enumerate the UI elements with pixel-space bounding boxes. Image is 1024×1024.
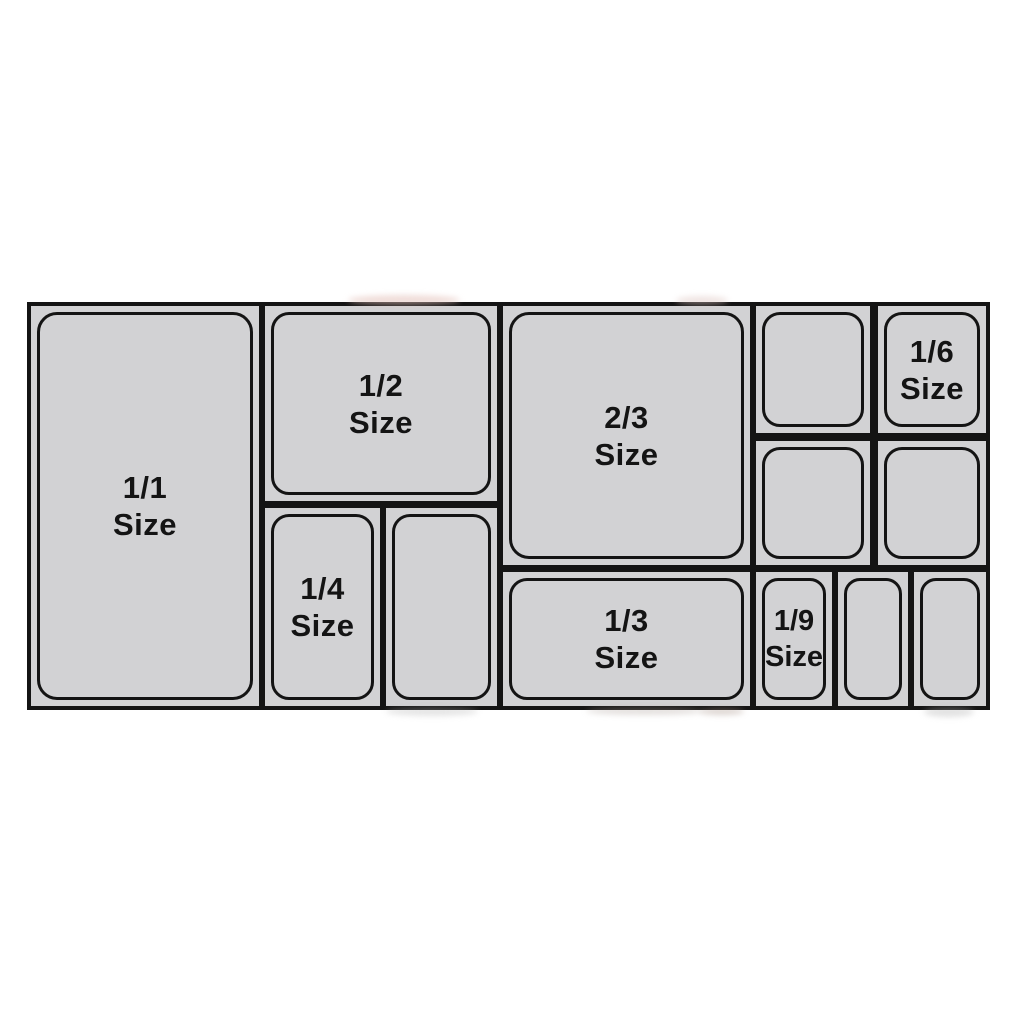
gastronorm-size-diagram: 1/1 Size 1/2 Size 1/4 Size <box>27 302 990 710</box>
pan-sixth-unlabeled-c <box>878 441 986 565</box>
pan-1-3-label: 1/3 Size <box>503 572 750 706</box>
pan-fraction: 2/3 <box>604 399 649 436</box>
pan-fraction: 1/6 <box>910 333 955 370</box>
pan-size-word: Size <box>113 506 177 543</box>
pan-fraction: 1/9 <box>774 603 814 639</box>
pan-1-9-label: 1/9 Size <box>756 572 832 706</box>
pan-rim <box>920 578 980 700</box>
pan-size-word: Size <box>349 404 413 441</box>
pan-1-4: 1/4 Size <box>265 508 380 706</box>
pan-size-word: Size <box>594 639 658 676</box>
pan-1-2-label: 1/2 Size <box>265 306 497 501</box>
pan-2-3: 2/3 Size <box>503 306 750 565</box>
pan-fraction: 1/3 <box>604 602 649 639</box>
pan-1-9: 1/9 Size <box>756 572 832 706</box>
pan-sixth-unlabeled-b <box>756 441 870 565</box>
pan-rim <box>392 514 491 700</box>
pan-ninth-unlabeled-b <box>914 572 986 706</box>
pan-fraction: 1/4 <box>300 570 345 607</box>
shadow-artifact <box>586 707 704 715</box>
pan-1-2: 1/2 Size <box>265 306 497 501</box>
pan-1-4-label: 1/4 Size <box>265 508 380 706</box>
pan-fraction: 1/1 <box>123 469 168 506</box>
shadow-artifact <box>700 708 744 715</box>
pan-rim <box>762 447 864 559</box>
pan-fraction: 1/2 <box>359 367 404 404</box>
pan-2-3-label: 2/3 Size <box>503 306 750 565</box>
pan-size-word: Size <box>765 639 823 675</box>
pan-sixth-unlabeled-a <box>756 306 870 433</box>
pan-1-6-label: 1/6 Size <box>878 306 986 433</box>
pan-quarter-unlabeled <box>386 508 497 706</box>
pan-1-1: 1/1 Size <box>31 306 259 706</box>
pan-size-word: Size <box>900 370 964 407</box>
pan-size-word: Size <box>290 607 354 644</box>
pan-rim <box>762 312 864 427</box>
pan-rim <box>844 578 902 700</box>
shadow-artifact <box>348 295 460 305</box>
pan-size-diagram-stage: 1/1 Size 1/2 Size 1/4 Size <box>0 0 1024 1024</box>
shadow-artifact <box>386 707 478 716</box>
pan-1-1-label: 1/1 Size <box>31 306 259 706</box>
pan-1-6: 1/6 Size <box>878 306 986 433</box>
pan-rim <box>884 447 980 559</box>
pan-size-word: Size <box>594 436 658 473</box>
shadow-artifact <box>924 707 974 717</box>
shadow-artifact <box>676 296 728 305</box>
pan-ninth-unlabeled-a <box>838 572 908 706</box>
pan-1-3: 1/3 Size <box>503 572 750 706</box>
